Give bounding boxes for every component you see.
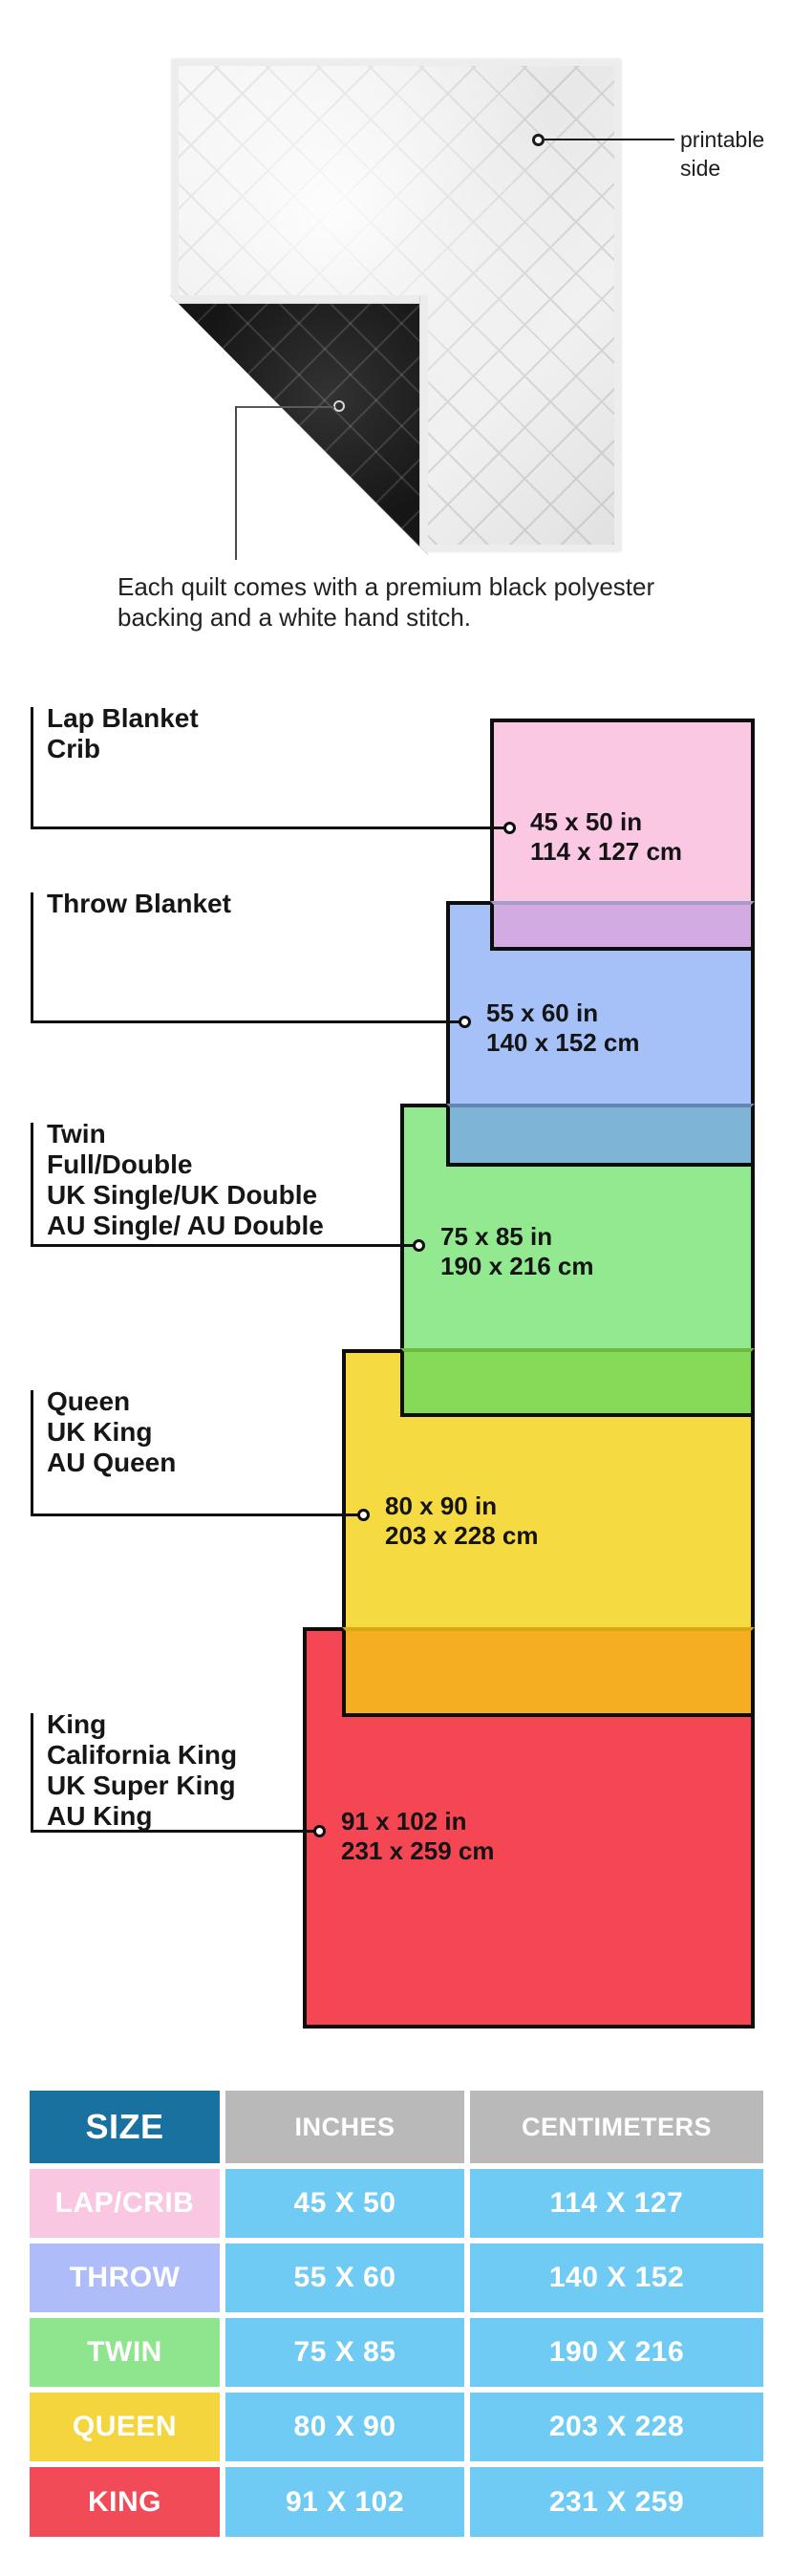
queen-dimensions-inches: 80 x 90 in: [385, 1492, 538, 1521]
table-cell-cm: 190 X 216: [470, 2318, 763, 2387]
flap-binding-edge-top: [170, 295, 428, 304]
table-header-inches: INCHES: [225, 2091, 464, 2163]
queen-king-overlap-band: [342, 1627, 755, 1717]
table-cell-inches: 55 X 60: [225, 2243, 464, 2312]
size-table: SIZE INCHES CENTIMETERS LAP/CRIB 45 X 50…: [30, 2091, 763, 2537]
throw-marker-icon: [459, 1016, 471, 1028]
throw-twin-overlap-band: [446, 1104, 755, 1167]
queen-label-line: Queen: [47, 1386, 176, 1417]
king-dimensions: 91 x 102 in 231 x 259 cm: [341, 1807, 494, 1866]
twin-dimensions: 75 x 85 in 190 x 216 cm: [440, 1222, 593, 1281]
king-dimensions-cm: 231 x 259 cm: [341, 1836, 494, 1866]
king-label-line: AU King: [47, 1801, 237, 1832]
twin-leader-tick: [31, 1123, 33, 1247]
throw-dimensions-inches: 55 x 60 in: [486, 998, 639, 1028]
twin-dimensions-inches: 75 x 85 in: [440, 1222, 593, 1252]
queen-label-line: AU Queen: [47, 1448, 176, 1478]
throw-leader-line: [32, 1020, 461, 1023]
lap-throw-overlap-band: [490, 901, 755, 951]
twin-label-line: AU Single/ AU Double: [47, 1211, 324, 1241]
table-row-label-queen: QUEEN: [30, 2393, 220, 2461]
lap-dimensions: 45 x 50 in 114 x 127 cm: [530, 807, 682, 867]
lap-leader-tick: [31, 707, 33, 829]
printable-side-leader-line: [545, 139, 674, 140]
table-row-label-king: KING: [30, 2467, 220, 2537]
twin-label-line: Twin: [47, 1119, 324, 1149]
flap-binding-edge-right: [419, 295, 428, 555]
table-row-label-throw: THROW: [30, 2243, 220, 2312]
queen-marker-icon: [357, 1509, 370, 1521]
twin-marker-icon: [413, 1239, 425, 1252]
queen-dimensions: 80 x 90 in 203 x 228 cm: [385, 1492, 538, 1551]
printable-side-label: printable side: [680, 125, 764, 182]
throw-dimensions-cm: 140 x 152 cm: [486, 1028, 639, 1058]
twin-label: Twin Full/Double UK Single/UK Double AU …: [47, 1119, 324, 1241]
table-cell-inches: 91 X 102: [225, 2467, 464, 2537]
queen-leader-line: [32, 1513, 360, 1516]
twin-leader-line: [32, 1244, 416, 1247]
queen-leader-tick: [31, 1390, 33, 1516]
king-label: King California King UK Super King AU Ki…: [47, 1709, 237, 1832]
king-dimensions-inches: 91 x 102 in: [341, 1807, 494, 1836]
lap-dimensions-inches: 45 x 50 in: [530, 807, 682, 837]
quilt-caption: Each quilt comes with a premium black po…: [118, 571, 654, 633]
table-cell-inches: 45 X 50: [225, 2169, 464, 2238]
table-cell-cm: 203 X 228: [470, 2393, 763, 2461]
table-row-label-lap-crib: LAP/CRIB: [30, 2169, 220, 2238]
king-label-line: UK Super King: [47, 1771, 237, 1801]
lap-leader-line: [32, 826, 505, 829]
printable-side-label-line2: side: [680, 154, 764, 182]
table-cell-cm: 231 X 259: [470, 2467, 763, 2537]
table-header-centimeters: CENTIMETERS: [470, 2091, 763, 2163]
king-leader-tick: [31, 1713, 33, 1833]
queen-dimensions-cm: 203 x 228 cm: [385, 1521, 538, 1551]
backing-marker-icon: [333, 400, 345, 412]
quilt-caption-line1: Each quilt comes with a premium black po…: [118, 571, 654, 602]
table-cell-cm: 114 X 127: [470, 2169, 763, 2238]
table-cell-cm: 140 X 152: [470, 2243, 763, 2312]
lap-label-line: Lap Blanket: [47, 703, 199, 734]
king-label-line: King: [47, 1709, 237, 1740]
backing-leader-line-horizontal: [236, 406, 334, 408]
table-cell-inches: 75 X 85: [225, 2318, 464, 2387]
table-header-size: SIZE: [30, 2091, 220, 2163]
backing-leader-line-vertical: [235, 406, 237, 560]
lap-label-line: Crib: [47, 734, 199, 764]
twin-dimensions-cm: 190 x 216 cm: [440, 1252, 593, 1281]
table-row-label-twin: TWIN: [30, 2318, 220, 2387]
quilt-caption-line2: backing and a white hand stitch.: [118, 602, 654, 633]
lap-marker-icon: [503, 822, 516, 834]
king-label-line: California King: [47, 1740, 237, 1771]
twin-label-line: UK Single/UK Double: [47, 1180, 324, 1211]
throw-leader-tick: [31, 892, 33, 1023]
twin-label-line: Full/Double: [47, 1149, 324, 1180]
queen-label: Queen UK King AU Queen: [47, 1386, 176, 1478]
king-leader-line: [32, 1830, 316, 1833]
lap-crib-label: Lap Blanket Crib: [47, 703, 199, 764]
throw-dimensions: 55 x 60 in 140 x 152 cm: [486, 998, 639, 1058]
throw-label: Throw Blanket: [47, 889, 231, 919]
printable-side-marker-icon: [532, 134, 545, 146]
throw-label-line: Throw Blanket: [47, 889, 231, 919]
king-marker-icon: [313, 1825, 326, 1837]
printable-side-label-line1: printable: [680, 125, 764, 154]
twin-queen-overlap-band: [400, 1348, 755, 1417]
queen-label-line: UK King: [47, 1417, 176, 1448]
lap-dimensions-cm: 114 x 127 cm: [530, 837, 682, 867]
table-cell-inches: 80 X 90: [225, 2393, 464, 2461]
